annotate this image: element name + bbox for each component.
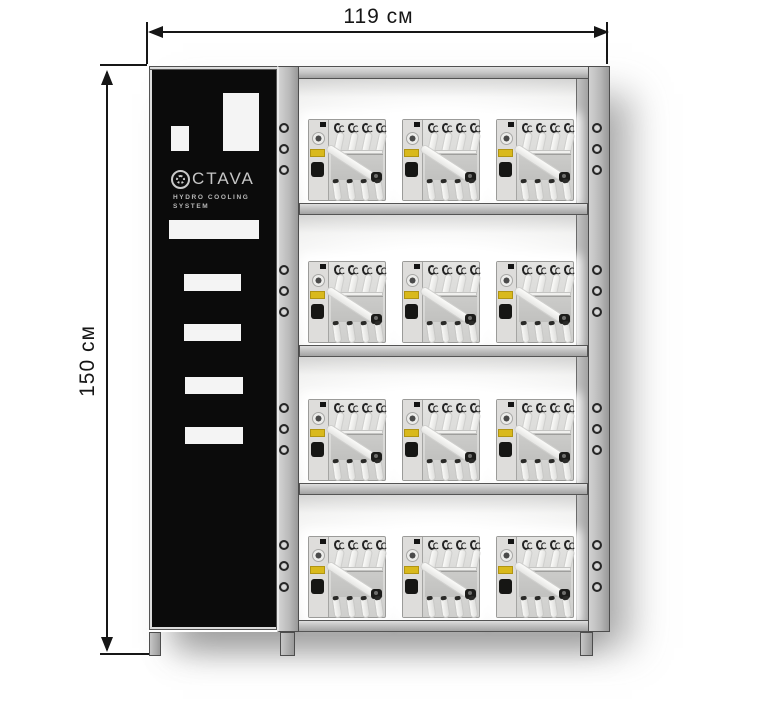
mount-hole-icon	[279, 424, 289, 434]
coolant-tube-icon	[374, 180, 385, 202]
network-port-icon	[320, 402, 326, 407]
unit-tube-panel	[423, 400, 479, 480]
unit-left-panel	[309, 120, 329, 200]
coolant-tube-icon	[454, 180, 465, 202]
coolant-tube-icon	[454, 460, 465, 482]
warning-label	[404, 566, 419, 574]
warning-label	[498, 566, 513, 574]
warning-label	[310, 566, 325, 574]
cabinet-leg	[280, 632, 295, 656]
network-port-icon	[508, 264, 514, 269]
unit-tube-panel	[329, 262, 385, 342]
unit-left-panel	[403, 262, 423, 342]
hydro-cooling-unit	[402, 119, 480, 201]
coolant-tube-icon	[468, 460, 479, 482]
mount-hole-icon	[592, 286, 602, 296]
unit-tube-panel	[423, 120, 479, 200]
shelf-rail	[277, 620, 610, 632]
round-gauge-icon	[500, 132, 513, 145]
warning-label	[498, 429, 513, 437]
cooling-cabinet: CTAVA HYDRO COOLINGSYSTEM	[149, 66, 610, 632]
mount-hole-icon	[592, 123, 602, 133]
mount-hole-icon	[592, 582, 602, 592]
mount-hole-icon	[279, 445, 289, 455]
warning-label	[498, 291, 513, 299]
round-gauge-icon	[312, 274, 325, 287]
unit-left-panel	[497, 120, 517, 200]
coolant-tube-icon	[426, 597, 437, 619]
network-port-icon	[508, 122, 514, 127]
network-port-icon	[414, 539, 420, 544]
hydro-cooling-unit	[496, 399, 574, 481]
round-gauge-icon	[500, 549, 513, 562]
power-connector-icon	[499, 442, 512, 457]
unit-tube-panel	[517, 400, 573, 480]
brand-wordmark: CTAVA	[192, 169, 255, 189]
control-panel: CTAVA HYDRO COOLINGSYSTEM	[149, 69, 277, 630]
coolant-tube-icon	[548, 322, 559, 344]
unit-tube-panel	[517, 537, 573, 617]
round-gauge-icon	[312, 132, 325, 145]
arrow-down-icon	[101, 637, 113, 652]
unit-tube-panel	[517, 262, 573, 342]
coolant-tube-icon	[468, 597, 479, 619]
vent-cutout	[185, 377, 243, 394]
mount-hole-icon	[279, 403, 289, 413]
round-gauge-icon	[312, 549, 325, 562]
coolant-tube-icon	[562, 322, 573, 344]
gear-core-icon	[176, 175, 185, 184]
power-connector-icon	[405, 162, 418, 177]
coolant-tube-icon	[562, 180, 573, 202]
mount-hole-icon	[592, 540, 602, 550]
warning-label	[498, 149, 513, 157]
coolant-tube-icon	[548, 180, 559, 202]
vent-cutout	[169, 220, 259, 239]
hydro-cooling-unit	[402, 536, 480, 618]
round-gauge-icon	[312, 412, 325, 425]
coolant-tube-icon	[440, 180, 451, 202]
network-port-icon	[508, 539, 514, 544]
mount-hole-icon	[592, 424, 602, 434]
unit-tube-panel	[329, 120, 385, 200]
power-connector-icon	[405, 304, 418, 319]
vent-cutout	[171, 126, 189, 151]
brand-subtitle-line2: SYSTEM	[173, 203, 209, 210]
power-connector-icon	[311, 579, 324, 594]
shelf-rail	[299, 345, 588, 357]
coolant-tube-icon	[332, 322, 343, 344]
brand-logo: CTAVA	[171, 169, 255, 189]
coolant-tube-icon	[360, 322, 371, 344]
unit-left-panel	[497, 400, 517, 480]
coolant-tube-icon	[426, 460, 437, 482]
unit-left-panel	[309, 400, 329, 480]
warning-label	[404, 149, 419, 157]
power-connector-icon	[499, 579, 512, 594]
vent-cutout	[184, 274, 241, 291]
coolant-tube-icon	[468, 322, 479, 344]
coolant-tube-icon	[440, 597, 451, 619]
mount-hole-icon	[279, 540, 289, 550]
network-port-icon	[414, 402, 420, 407]
coolant-tube-icon	[360, 460, 371, 482]
coolant-tube-icon	[562, 460, 573, 482]
height-dimension-label: 150 см	[76, 301, 100, 421]
dimension-tick	[606, 22, 608, 64]
coolant-tube-icon	[534, 322, 545, 344]
coolant-tube-icon	[374, 460, 385, 482]
power-connector-icon	[405, 579, 418, 594]
coolant-tube-icon	[520, 322, 531, 344]
round-gauge-icon	[406, 274, 419, 287]
coolant-tube-icon	[562, 597, 573, 619]
coolant-tube-icon	[360, 597, 371, 619]
hydro-cooling-unit	[402, 261, 480, 343]
power-connector-icon	[311, 442, 324, 457]
dimension-tick	[100, 64, 147, 66]
round-gauge-icon	[500, 274, 513, 287]
mount-hole-icon	[592, 561, 602, 571]
mount-hole-icon	[592, 165, 602, 175]
height-dimension-line	[106, 72, 108, 650]
coolant-tube-icon	[454, 322, 465, 344]
unit-left-panel	[403, 400, 423, 480]
hydro-cooling-unit	[402, 399, 480, 481]
coolant-tube-icon	[426, 180, 437, 202]
coolant-tube-icon	[520, 460, 531, 482]
hydro-cooling-unit	[308, 536, 386, 618]
hydro-cooling-unit	[308, 119, 386, 201]
coolant-tube-icon	[346, 460, 357, 482]
coolant-tube-icon	[374, 322, 385, 344]
arrow-left-icon	[148, 26, 163, 38]
unit-left-panel	[309, 262, 329, 342]
power-connector-icon	[499, 162, 512, 177]
mount-hole-icon	[279, 144, 289, 154]
unit-tube-panel	[423, 262, 479, 342]
warning-label	[404, 429, 419, 437]
coolant-tube-icon	[534, 460, 545, 482]
coolant-tube-icon	[454, 597, 465, 619]
coolant-tube-icon	[440, 460, 451, 482]
unit-tube-panel	[517, 120, 573, 200]
power-connector-icon	[311, 162, 324, 177]
coolant-tube-icon	[468, 180, 479, 202]
power-connector-icon	[499, 304, 512, 319]
coolant-tube-icon	[332, 597, 343, 619]
coolant-tube-icon	[360, 180, 371, 202]
unit-tube-panel	[329, 400, 385, 480]
coolant-tube-icon	[346, 597, 357, 619]
warning-label	[310, 149, 325, 157]
warning-label	[404, 291, 419, 299]
round-gauge-icon	[500, 412, 513, 425]
network-port-icon	[508, 402, 514, 407]
warning-label	[310, 291, 325, 299]
shelf-rail	[299, 483, 588, 495]
power-connector-icon	[405, 442, 418, 457]
vent-cutout	[184, 324, 241, 341]
hydro-cooling-unit	[308, 399, 386, 481]
power-connector-icon	[311, 304, 324, 319]
hydro-cooling-unit	[496, 261, 574, 343]
unit-left-panel	[403, 537, 423, 617]
cabinet-leg	[580, 632, 593, 656]
mount-hole-icon	[279, 561, 289, 571]
network-port-icon	[414, 122, 420, 127]
network-port-icon	[320, 122, 326, 127]
coolant-tube-icon	[534, 597, 545, 619]
warning-label	[310, 429, 325, 437]
round-gauge-icon	[406, 132, 419, 145]
coolant-tube-icon	[548, 597, 559, 619]
round-gauge-icon	[406, 549, 419, 562]
shelf-rail	[299, 203, 588, 215]
coolant-tube-icon	[332, 180, 343, 202]
coolant-tube-icon	[548, 460, 559, 482]
mount-hole-icon	[279, 265, 289, 275]
coolant-tube-icon	[534, 180, 545, 202]
hydro-cooling-unit	[308, 261, 386, 343]
brand-subtitle: HYDRO COOLINGSYSTEM	[173, 193, 249, 211]
coolant-tube-icon	[332, 460, 343, 482]
dimension-tick	[146, 22, 148, 64]
unit-left-panel	[497, 537, 517, 617]
unit-left-panel	[403, 120, 423, 200]
coolant-tube-icon	[346, 322, 357, 344]
unit-tube-panel	[329, 537, 385, 617]
vent-cutout	[223, 93, 259, 151]
unit-left-panel	[309, 537, 329, 617]
octava-gear-icon	[171, 170, 190, 189]
hydro-cooling-unit	[496, 536, 574, 618]
width-dimension-label: 119 см	[150, 5, 607, 29]
mount-hole-icon	[592, 445, 602, 455]
network-port-icon	[320, 264, 326, 269]
coolant-tube-icon	[346, 180, 357, 202]
coolant-tube-icon	[520, 180, 531, 202]
mount-hole-icon	[279, 165, 289, 175]
hydro-cooling-unit	[496, 119, 574, 201]
mount-hole-icon	[592, 265, 602, 275]
network-port-icon	[320, 539, 326, 544]
coolant-tube-icon	[440, 322, 451, 344]
cabinet-leg	[149, 632, 161, 656]
mount-hole-icon	[592, 403, 602, 413]
coolant-tube-icon	[520, 597, 531, 619]
network-port-icon	[414, 264, 420, 269]
mount-hole-icon	[279, 307, 289, 317]
brand-subtitle-line1: HYDRO COOLING	[173, 194, 249, 201]
schematic-canvas: 119 см 150 см CTAVA	[0, 0, 757, 723]
coolant-tube-icon	[426, 322, 437, 344]
mount-hole-icon	[279, 582, 289, 592]
mount-hole-icon	[592, 307, 602, 317]
arrow-up-icon	[101, 70, 113, 85]
round-gauge-icon	[406, 412, 419, 425]
mount-hole-icon	[279, 286, 289, 296]
mount-hole-icon	[592, 144, 602, 154]
unit-tube-panel	[423, 537, 479, 617]
vent-cutout	[185, 427, 243, 444]
mount-hole-icon	[279, 123, 289, 133]
unit-left-panel	[497, 262, 517, 342]
width-dimension-line	[150, 31, 607, 33]
coolant-tube-icon	[374, 597, 385, 619]
